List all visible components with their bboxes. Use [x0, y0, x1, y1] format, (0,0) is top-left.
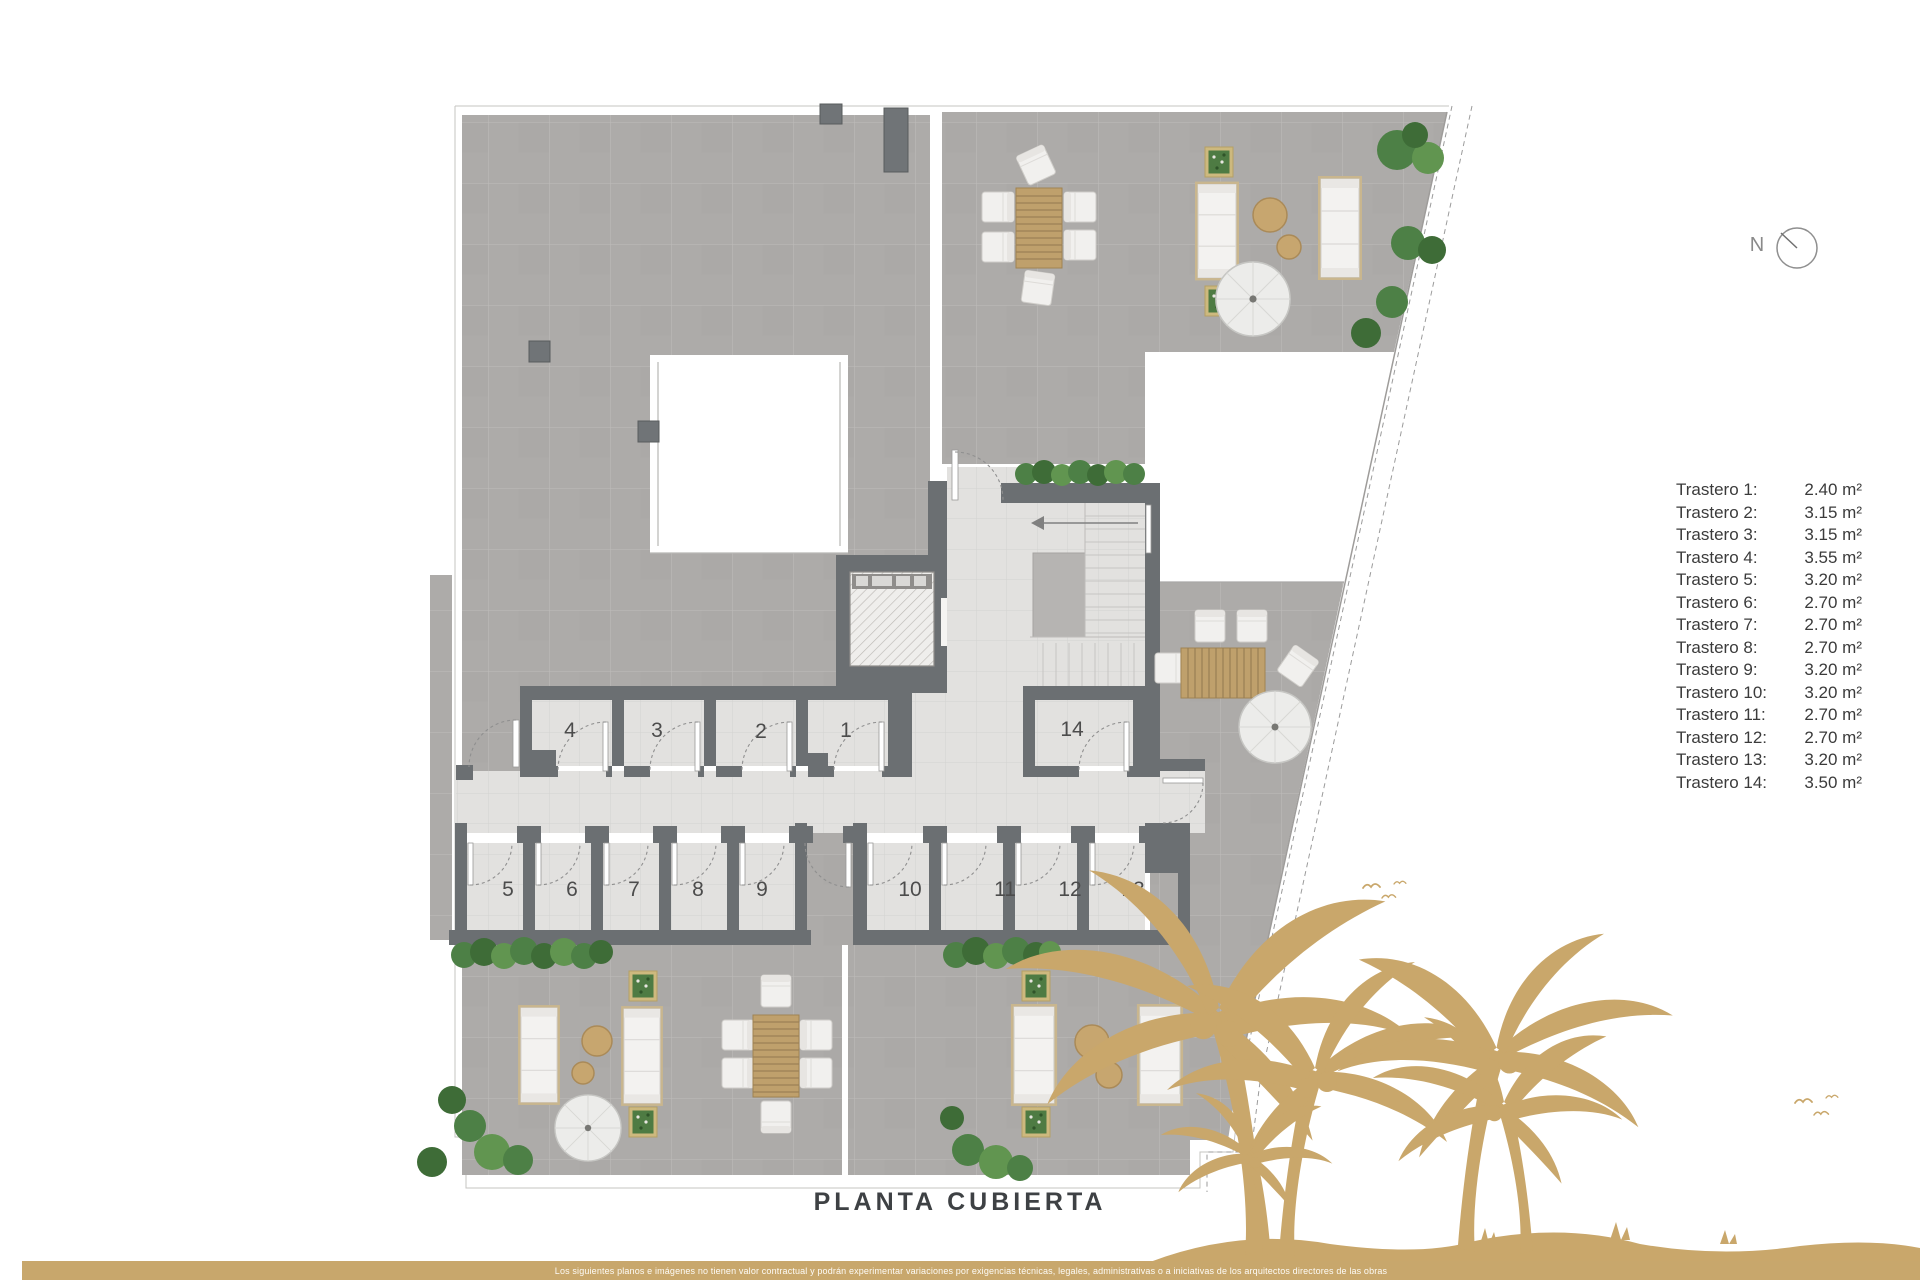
legend-row-14: Trastero 14:3.50 m² — [1676, 772, 1862, 795]
divider-top — [930, 107, 942, 470]
legend-label: Trastero 4: — [1676, 547, 1758, 570]
room-number-4: 4 — [564, 719, 576, 742]
legend-area: 2.70 m² — [1804, 727, 1862, 750]
neighbour-roof-sliver — [430, 575, 452, 940]
legend-row-7: Trastero 7:2.70 m² — [1676, 614, 1862, 637]
void-left — [650, 355, 848, 553]
legend-area: 2.40 m² — [1804, 479, 1862, 502]
legend-row-1: Trastero 1:2.40 m² — [1676, 479, 1862, 502]
legend-label: Trastero 7: — [1676, 614, 1758, 637]
legend-row-5: Trastero 5:3.20 m² — [1676, 569, 1862, 592]
legend-row-2: Trastero 2:3.15 m² — [1676, 502, 1862, 525]
legend-label: Trastero 13: — [1676, 749, 1767, 772]
compass-label: N — [1750, 234, 1764, 256]
room-number-2: 2 — [755, 720, 767, 743]
room-number-1: 1 — [840, 719, 852, 742]
legend-row-3: Trastero 3:3.15 m² — [1676, 524, 1862, 547]
room-number-9: 9 — [756, 878, 768, 901]
legend: Trastero 1:2.40 m² Trastero 2:3.15 m² Tr… — [1676, 479, 1862, 794]
page-title: PLANTA CUBIERTA — [0, 1188, 1920, 1217]
legend-row-9: Trastero 9:3.20 m² — [1676, 659, 1862, 682]
floor-plan: 1 2 3 4 5 6 7 8 9 10 11 12 13 14 N — [0, 0, 1920, 1280]
side-table — [582, 1026, 612, 1056]
legend-area: 2.70 m² — [1804, 614, 1862, 637]
parasol — [1239, 691, 1311, 763]
legend-area: 3.15 m² — [1804, 524, 1862, 547]
elevator — [836, 555, 947, 693]
legend-label: Trastero 10: — [1676, 682, 1767, 705]
room-number-12: 12 — [1058, 878, 1081, 901]
wood-table — [1016, 188, 1062, 268]
legend-row-13: Trastero 13:3.20 m² — [1676, 749, 1862, 772]
legend-label: Trastero 11: — [1676, 704, 1766, 727]
room-number-11: 11 — [994, 878, 1016, 901]
room-number-5: 5 — [502, 878, 514, 901]
stairwell — [1030, 503, 1145, 690]
room-number-10: 10 — [898, 878, 921, 901]
parasol — [555, 1095, 621, 1161]
legend-label: Trastero 5: — [1676, 569, 1758, 592]
side-table — [572, 1062, 594, 1084]
elevator-door — [941, 598, 947, 646]
legend-area: 3.20 m² — [1804, 659, 1862, 682]
planter — [629, 971, 657, 1001]
legend-label: Trastero 9: — [1676, 659, 1758, 682]
legend-row-4: Trastero 4:3.55 m² — [1676, 547, 1862, 570]
room-number-14: 14 — [1060, 718, 1084, 741]
planter — [1022, 971, 1050, 1001]
legend-row-12: Trastero 12:2.70 m² — [1676, 727, 1862, 750]
legend-area: 3.20 m² — [1804, 749, 1862, 772]
legend-row-6: Trastero 6:2.70 m² — [1676, 592, 1862, 615]
room-number-6: 6 — [566, 878, 578, 901]
legend-area: 2.70 m² — [1804, 704, 1862, 727]
room-number-7: 7 — [628, 878, 640, 901]
legend-row-8: Trastero 8:2.70 m² — [1676, 637, 1862, 660]
parasol — [1216, 262, 1290, 336]
side-table — [1277, 235, 1301, 259]
footer-bar: Los siguientes planos e imágenes no tien… — [22, 1261, 1920, 1280]
legend-area: 3.20 m² — [1804, 569, 1862, 592]
legend-area: 3.50 m² — [1804, 772, 1862, 795]
legend-label: Trastero 6: — [1676, 592, 1758, 615]
planter — [1205, 147, 1233, 177]
legend-label: Trastero 14: — [1676, 772, 1767, 795]
legend-label: Trastero 12: — [1676, 727, 1767, 750]
legend-area: 3.20 m² — [1804, 682, 1862, 705]
legend-label: Trastero 8: — [1676, 637, 1758, 660]
planter — [629, 1107, 657, 1137]
legend-area: 3.15 m² — [1804, 502, 1862, 525]
legend-label: Trastero 2: — [1676, 502, 1758, 525]
side-table — [1253, 198, 1287, 232]
storage-room-14 — [1035, 700, 1133, 766]
planter — [1022, 1107, 1050, 1137]
legend-area: 2.70 m² — [1804, 592, 1862, 615]
legend-area: 2.70 m² — [1804, 637, 1862, 660]
legend-area: 3.55 m² — [1804, 547, 1862, 570]
room-number-3: 3 — [651, 719, 663, 742]
legend-row-10: Trastero 10:3.20 m² — [1676, 682, 1862, 705]
disclaimer-text: Los siguientes planos e imágenes no tien… — [555, 1266, 1387, 1276]
divider-bottom — [842, 945, 848, 1175]
north-compass: N — [1750, 228, 1817, 268]
legend-label: Trastero 3: — [1676, 524, 1758, 547]
legend-row-11: Trastero 11:2.70 m² — [1676, 704, 1862, 727]
legend-label: Trastero 1: — [1676, 479, 1758, 502]
plan-sheet: 1 2 3 4 5 6 7 8 9 10 11 12 13 14 N — [0, 0, 1920, 1280]
room-number-8: 8 — [692, 878, 704, 901]
